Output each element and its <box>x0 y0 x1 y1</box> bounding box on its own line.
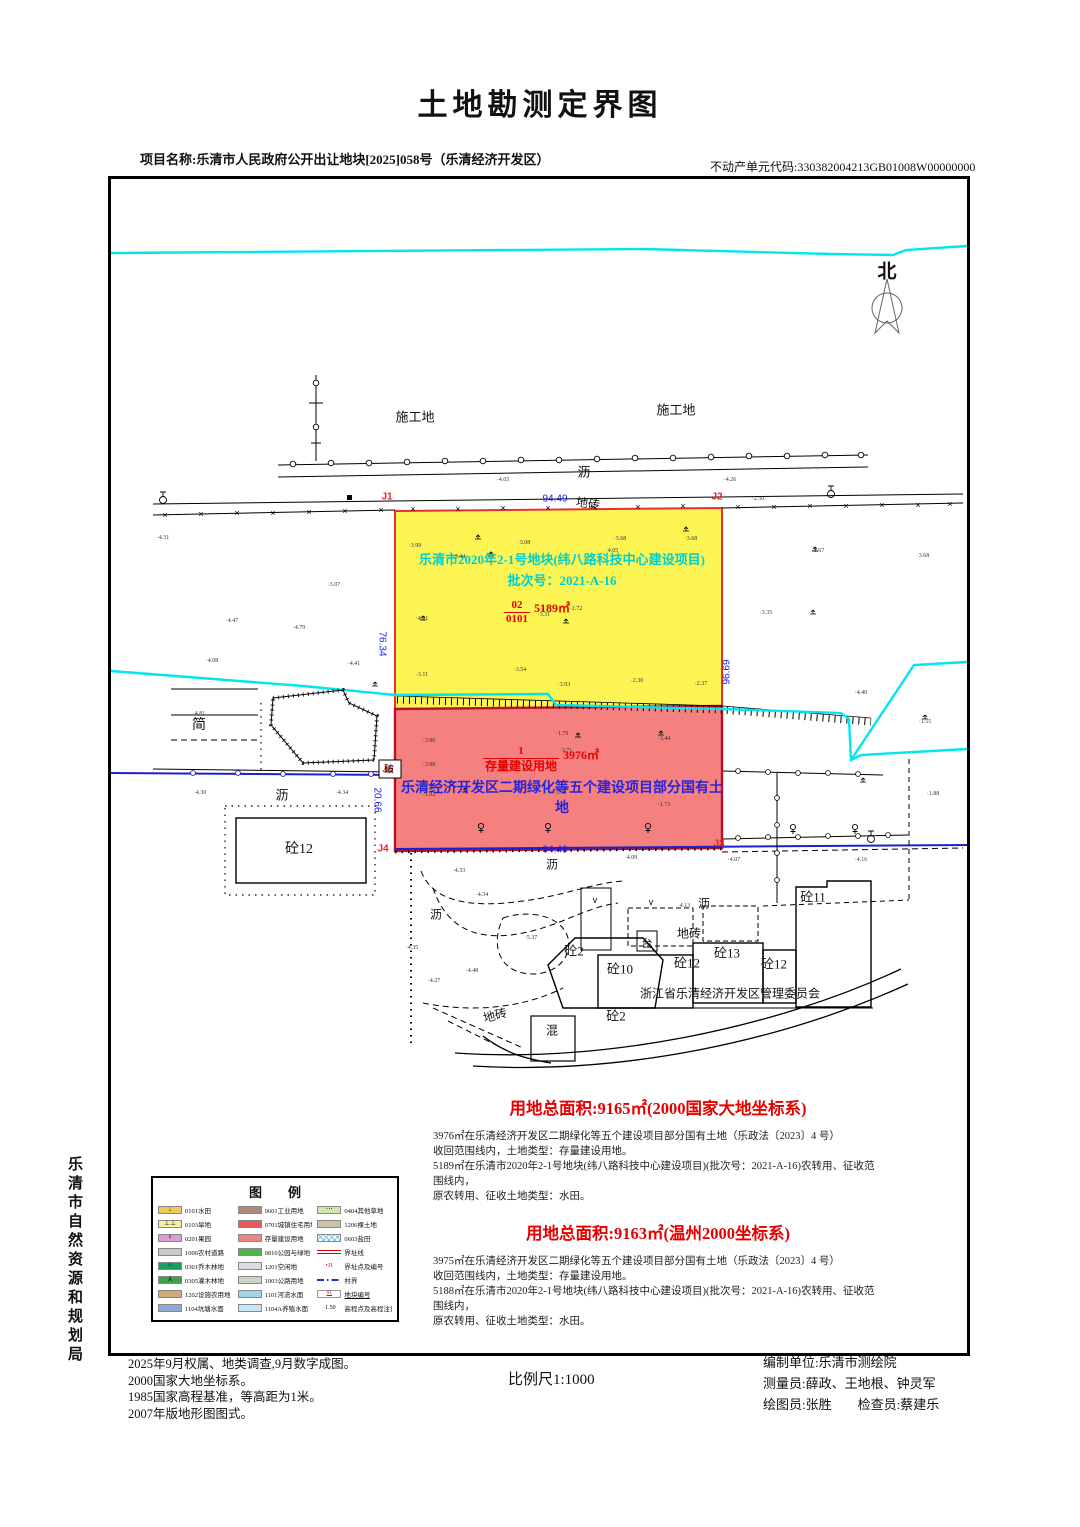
spot-elevation: ·3.98 <box>423 762 436 768</box>
parcel-code-fraction: 1 存量建设用地 <box>483 745 559 774</box>
spot-elevation: ·4.07 <box>728 857 741 863</box>
legend-swatch <box>238 1290 262 1298</box>
svg-text:v: v <box>649 897 654 907</box>
svg-text:×: × <box>947 499 952 509</box>
spot-elevation: ·3.90 <box>423 738 436 744</box>
spot-elevation: ·3.68 <box>685 536 698 542</box>
para-line: 3975㎡在乐清经济开发区二期绿化等五个建设项目部分国有土地（乐政法〔2023〕… <box>433 1254 883 1269</box>
map-label: 施工地 <box>395 407 434 426</box>
legend-swatch-parcel-number: 01 <box>317 1290 341 1298</box>
map-label: 沥 <box>546 856 558 873</box>
area-summary: 用地总面积:9165㎡(2000国家大地坐标系) 3976㎡在乐清经济开发区二期… <box>433 1095 883 1329</box>
legend-swatch: ↓ <box>158 1206 182 1214</box>
boundary-point-J1: J1 <box>381 492 392 503</box>
yellow-parcel-name: 乐清市2020年2-1号地块(纬八路科技中心建设项目) 批次号：2021-A-1… <box>397 549 727 591</box>
legend-label: 界址线 <box>344 1247 364 1257</box>
svg-text:×: × <box>234 508 239 518</box>
boundary-point-J4: J4 <box>377 844 388 855</box>
map-label: 破 <box>384 761 394 776</box>
spot-elevation: ·2.37 <box>695 681 708 687</box>
legend-swatch: ⊥⊥ <box>158 1220 182 1228</box>
project-name: 项目名称:乐清市人民政府公开出让地块[2025]058号（乐清经济开发区） <box>140 149 550 168</box>
edge-length-left: 76.34 <box>377 631 388 656</box>
para-line: 3976㎡在乐清经济开发区二期绿化等五个建设项目部分国有土地（乐政法〔2023〕… <box>433 1129 883 1144</box>
map-scale: 比例尺1:1000 <box>508 1368 595 1389</box>
map-label: 砼2 <box>606 1006 626 1025</box>
map-label: 沥 <box>698 895 710 912</box>
spot-elevation: ·4.16 <box>855 857 868 863</box>
north-label: 北 <box>877 257 896 284</box>
para-line: 5189㎡在乐清市2020年2-1号地块(纬八路科技中心建设项目)(批次号：20… <box>433 1159 883 1189</box>
spot-elevation: ·2.50 <box>752 496 765 502</box>
legend-label: 0701城镇住宅用地 <box>265 1219 313 1229</box>
legend-swatch <box>238 1234 262 1242</box>
authority-vertical-label: 乐清市自然资源和规划局 <box>64 1156 85 1365</box>
legend-swatch-boundary-point: •J1 <box>317 1262 341 1270</box>
spot-elevation: ·3.67 <box>812 548 825 554</box>
edge-length-bottom: 94.49 <box>542 845 567 856</box>
survey-sheet-page: 土地勘测定界图 项目名称:乐清市人民政府公开出让地块[2025]058号（乐清经… <box>0 0 1080 1527</box>
svg-text:×: × <box>162 510 167 520</box>
map-label: 地砖 <box>575 493 601 513</box>
legend-column-3: ⋯0404其他草地 1206裸土地 0603盐田 界址线 •J1界址点及编号 村… <box>317 1204 392 1314</box>
spot-elevation: ·3.78 <box>554 790 567 796</box>
spot-elevation: ·4.30 <box>194 790 207 796</box>
shrub-forest-icon: ⅄ <box>159 1277 181 1283</box>
dryland-icon: ⊥⊥ <box>159 1221 181 1227</box>
legend-label: 地块编号 <box>344 1289 370 1299</box>
area-paragraph-national: 3976㎡在乐清经济开发区二期绿化等五个建设项目部分国有土地（乐政法〔2023〕… <box>433 1129 883 1204</box>
paddy-icon: ↓ <box>159 1207 181 1213</box>
edge-length-top: 94.49 <box>542 494 567 505</box>
legend-swatch <box>238 1248 262 1256</box>
map-label: 沥 <box>577 462 590 481</box>
spot-elevation: ·3.71 <box>560 748 573 754</box>
parcel-code-bottom: 0101 <box>504 613 530 626</box>
map-label: 砼12 <box>674 953 700 972</box>
yellow-parcel-name-line1: 乐清市2020年2-1号地块(纬八路科技中心建设项目) <box>397 549 727 570</box>
map-label: 砼12 <box>761 954 787 973</box>
svg-text:×: × <box>270 508 275 518</box>
legend-swatch <box>158 1248 182 1256</box>
edge-length-red-left: 20.66 <box>372 787 383 812</box>
area-heading-wenzhou: 用地总面积:9163㎡(温州2000坐标系) <box>433 1220 883 1244</box>
map-frame: ×××× ××× ×××× ××× ×××× ××× <box>108 176 970 1356</box>
spot-elevation: ·4.27 <box>428 978 441 984</box>
spot-elevation: ·3.54 <box>514 667 527 673</box>
footer-credits: 编制单位:乐清市测绘院 测量员:薛政、王地根、钟灵军 绘图员:张胜 检查员:蔡建… <box>763 1352 939 1415</box>
legend-label: 1006农村道路 <box>185 1247 224 1257</box>
svg-text:×: × <box>635 502 640 512</box>
svg-text:×: × <box>500 503 505 513</box>
svg-text:×: × <box>342 506 347 516</box>
spot-elevation: ·4.65 <box>497 477 510 483</box>
legend-swatch-saltpan <box>317 1234 341 1242</box>
spot-elevation: ·3.99 <box>409 543 422 549</box>
legend-label: 0305灌木林地 <box>185 1275 224 1285</box>
elevation-point-icon: ·1.50 <box>317 1304 341 1312</box>
spot-elevation: ·4.26 <box>724 477 737 483</box>
orchard-icon: ♀ <box>159 1235 181 1241</box>
map-label: 砼2 <box>564 941 584 960</box>
para-line: 5188㎡在乐清市2020年2-1号地块(纬八路科技中心建设项目)(批次号：20… <box>433 1284 883 1314</box>
spot-elevation: ·3.68 <box>917 553 930 559</box>
svg-text:×: × <box>879 500 884 510</box>
note-line: 1985国家高程基准，等高距为1米。 <box>128 1389 356 1406</box>
right-fence-posts <box>736 769 891 883</box>
legend-swatch <box>238 1276 262 1284</box>
grass-dots-icon: ⋯ <box>318 1207 340 1213</box>
map-label: 简 <box>192 714 206 734</box>
note-line: 2007年版地形图图式。 <box>128 1406 356 1423</box>
boundary-point-icon: •J1 <box>317 1262 341 1270</box>
svg-text:×: × <box>378 505 383 515</box>
map-label: 混 <box>546 1022 558 1039</box>
svg-text:×: × <box>545 503 550 513</box>
svg-text:×: × <box>410 504 415 514</box>
right-fences <box>723 771 908 903</box>
map-label: 浙江省乐清经济开发区管理委员会 <box>640 985 820 1002</box>
legend-label: 0101水田 <box>185 1205 211 1215</box>
spot-elevation: ·3.11 <box>416 672 428 678</box>
parcel-code-top: 1 <box>483 745 559 759</box>
legend-label: 存量建设用地 <box>265 1233 304 1243</box>
legend-label: 0601工业用地 <box>265 1205 304 1215</box>
spot-elevation: ·1.88 <box>927 791 940 797</box>
legend-label: 村界 <box>344 1275 357 1285</box>
footer-notes: 2025年9月权属、地类调查,9月数字成图。 2000国家大地坐标系。 1985… <box>128 1356 356 1422</box>
legend-label: 界址点及编号 <box>344 1261 383 1271</box>
area-paragraph-wenzhou: 3975㎡在乐清经济开发区二期绿化等五个建设项目部分国有土地（乐政法〔2023〕… <box>433 1254 883 1329</box>
parcel-code-fraction: 02 0101 <box>504 599 530 626</box>
legend-swatch <box>317 1220 341 1228</box>
page-title: 土地勘测定界图 <box>0 80 1080 124</box>
legend-column-2: 0601工业用地 0701城镇住宅用地 存量建设用地 0810公园与绿地 120… <box>238 1204 313 1314</box>
svg-text:×: × <box>306 507 311 517</box>
edge-length-right: 96.69 <box>722 659 733 684</box>
spot-elevation: ·2.30 <box>631 678 644 684</box>
fence-posts <box>290 380 864 467</box>
spot-elevation: ·4.34 <box>336 790 349 796</box>
spot-elevation: ·4.08 <box>206 658 219 664</box>
spot-elevation: ·3.08 <box>518 540 531 546</box>
spot-elevation: ·3.07 <box>328 582 341 588</box>
parcel-code-top: 02 <box>504 599 530 613</box>
spot-elevation: ·4.31 <box>416 616 429 622</box>
spot-elevation: ·4.41 <box>348 661 361 667</box>
legend-swatch: ⋯ <box>317 1206 341 1214</box>
spot-elevation: ·4.05 <box>606 548 619 554</box>
legend-swatch-village-boundary <box>317 1279 341 1281</box>
spot-elevation: ·4.40 <box>855 690 868 696</box>
legend-swatch-boundary-line <box>317 1250 341 1254</box>
spot-elevation: ·1.73 <box>658 802 671 808</box>
legend-swatch <box>158 1304 182 1312</box>
credit-line: 测量员:薛政、王地根、钟灵军 <box>763 1373 939 1394</box>
legend-label: 1206裸土地 <box>344 1219 377 1229</box>
para-line: 原农转用、征收土地类型：水田。 <box>433 1314 883 1329</box>
spot-elevation: ·4.35 <box>406 945 419 951</box>
spot-elevation: ·4.47 <box>226 618 239 624</box>
area-heading-national: 用地总面积:9165㎡(2000国家大地坐标系) <box>433 1095 883 1119</box>
svg-text:×: × <box>915 500 920 510</box>
credit-line: 绘图员:张胜 检查员:蔡建乐 <box>763 1394 939 1415</box>
svg-text:v: v <box>593 895 598 905</box>
svg-text:×: × <box>771 502 776 512</box>
legend-label: 0603盐田 <box>344 1233 370 1243</box>
spot-elevation: ·5.37 <box>525 935 538 941</box>
svg-text:×: × <box>680 501 685 511</box>
map-label: 台 <box>642 935 653 951</box>
legend-label: 1104A养殖水面 <box>265 1303 308 1313</box>
spot-elevation: ·4.09 <box>625 855 638 861</box>
legend-swatch: ○ <box>158 1262 182 1270</box>
legend-label: 0810公园与绿地 <box>265 1247 311 1257</box>
yellow-parcel-name-line2: 批次号：2021-A-16 <box>397 570 727 591</box>
legend-swatch: ⅄ <box>158 1276 182 1284</box>
spot-elevation: ·1.55 <box>919 719 932 725</box>
spot-elevation: ·4.31 <box>157 535 170 541</box>
north-arrow-symbol <box>872 279 902 333</box>
map-label: 沥 <box>275 785 288 804</box>
spot-elevation: ·3.68 <box>614 536 627 542</box>
para-line: 收回范围线内，土地类型：存量建设用地。 <box>433 1144 883 1159</box>
spot-elevation: ·4.48 <box>466 968 479 974</box>
legend-label: 1101河流水面 <box>265 1289 304 1299</box>
credit-line: 编制单位:乐清市测绘院 <box>763 1352 939 1373</box>
legend-label: 1202设施农用地 <box>185 1289 231 1299</box>
legend-swatch <box>238 1262 262 1270</box>
legend-label: 1003公路用地 <box>265 1275 304 1285</box>
parcel-number-icon: 01 <box>318 1291 340 1297</box>
legend-label: 0201果园 <box>185 1233 211 1243</box>
map-label: 施工地 <box>656 400 695 419</box>
svg-text:×: × <box>843 501 848 511</box>
map-label: 地砖 <box>677 925 701 942</box>
svg-text:×: × <box>455 504 460 514</box>
legend-label: 高程点及高程注记 <box>344 1303 392 1313</box>
map-label: 砼12 <box>285 838 313 858</box>
legend-column-1: ↓0101水田 ⊥⊥0103旱地 ♀0201果园 1006农村道路 ○0301乔… <box>158 1204 233 1314</box>
legend-swatch: ♀ <box>158 1234 182 1242</box>
note-line: 2025年9月权属、地类调查,9月数字成图。 <box>128 1356 356 1373</box>
spot-elevation: ·4.33 <box>453 868 466 874</box>
legend-swatch-elevation: ·1.50 <box>317 1304 341 1312</box>
red-parcel-code: 1 存量建设用地 3976㎡ <box>483 745 599 774</box>
map-label: 沥 <box>430 906 442 923</box>
legend-swatch <box>238 1304 262 1312</box>
spot-elevation: ·4.34 <box>476 892 489 898</box>
red-parcel-owner-text: 乐清经济开发区二期绿化等五个建设项目部分国有土地 <box>397 777 727 817</box>
spot-elevation: ·4.13 <box>678 903 691 909</box>
spot-elevation: ·1.92 <box>423 792 436 798</box>
map-label: 砼13 <box>714 943 740 962</box>
para-line: 原农转用、征收土地类型：水田。 <box>433 1189 883 1204</box>
spot-elevation: ·4.81 <box>193 711 206 717</box>
legend-label: 1104坑塘水面 <box>185 1303 224 1313</box>
real-estate-unit-code: 不动产单元代码:330382004213GB01008W00000000 <box>710 158 975 175</box>
spot-elevation: ·3.35 <box>760 610 773 616</box>
legend-title: 图 例 <box>158 1182 392 1201</box>
spot-elevation: ·2.72 <box>570 606 583 612</box>
legend-label: 1201空闲地 <box>265 1261 298 1271</box>
boundary-point-J2: J2 <box>711 492 722 503</box>
svg-text:×: × <box>735 502 740 512</box>
spot-elevation: ·3.31 <box>538 612 551 618</box>
note-line: 2000国家大地坐标系。 <box>128 1373 356 1390</box>
boundary-point-J3: J3 <box>713 839 724 850</box>
svg-text:×: × <box>807 501 812 511</box>
legend-label: 0103旱地 <box>185 1219 211 1229</box>
spot-elevation: ·3.44 <box>658 736 671 742</box>
para-line: 收回范围线内，土地类型：存量建设用地。 <box>433 1269 883 1284</box>
parcel-code-bottom: 存量建设用地 <box>483 759 559 773</box>
svg-text:×: × <box>198 509 203 519</box>
legend-box: 图 例 ↓0101水田 ⊥⊥0103旱地 ♀0201果园 1006农村道路 ○0… <box>151 1176 399 1322</box>
legend-swatch <box>238 1206 262 1214</box>
spot-elevation: ·1.79 <box>556 731 569 737</box>
map-label: 砼11 <box>800 887 826 906</box>
spot-elevation: ·3.44 <box>453 554 466 560</box>
spot-elevation: ·4.79 <box>293 625 306 631</box>
legend-label: 0301乔木林地 <box>185 1261 224 1271</box>
map-label: 砼10 <box>607 959 633 978</box>
legend-swatch <box>238 1220 262 1228</box>
legend-label: 0404其他草地 <box>344 1205 383 1215</box>
spot-elevation: ·3.93 <box>558 682 571 688</box>
arbor-forest-icon: ○ <box>159 1263 181 1269</box>
legend-swatch <box>158 1290 182 1298</box>
legend-grid: ↓0101水田 ⊥⊥0103旱地 ♀0201果园 1006农村道路 ○0301乔… <box>158 1204 392 1314</box>
